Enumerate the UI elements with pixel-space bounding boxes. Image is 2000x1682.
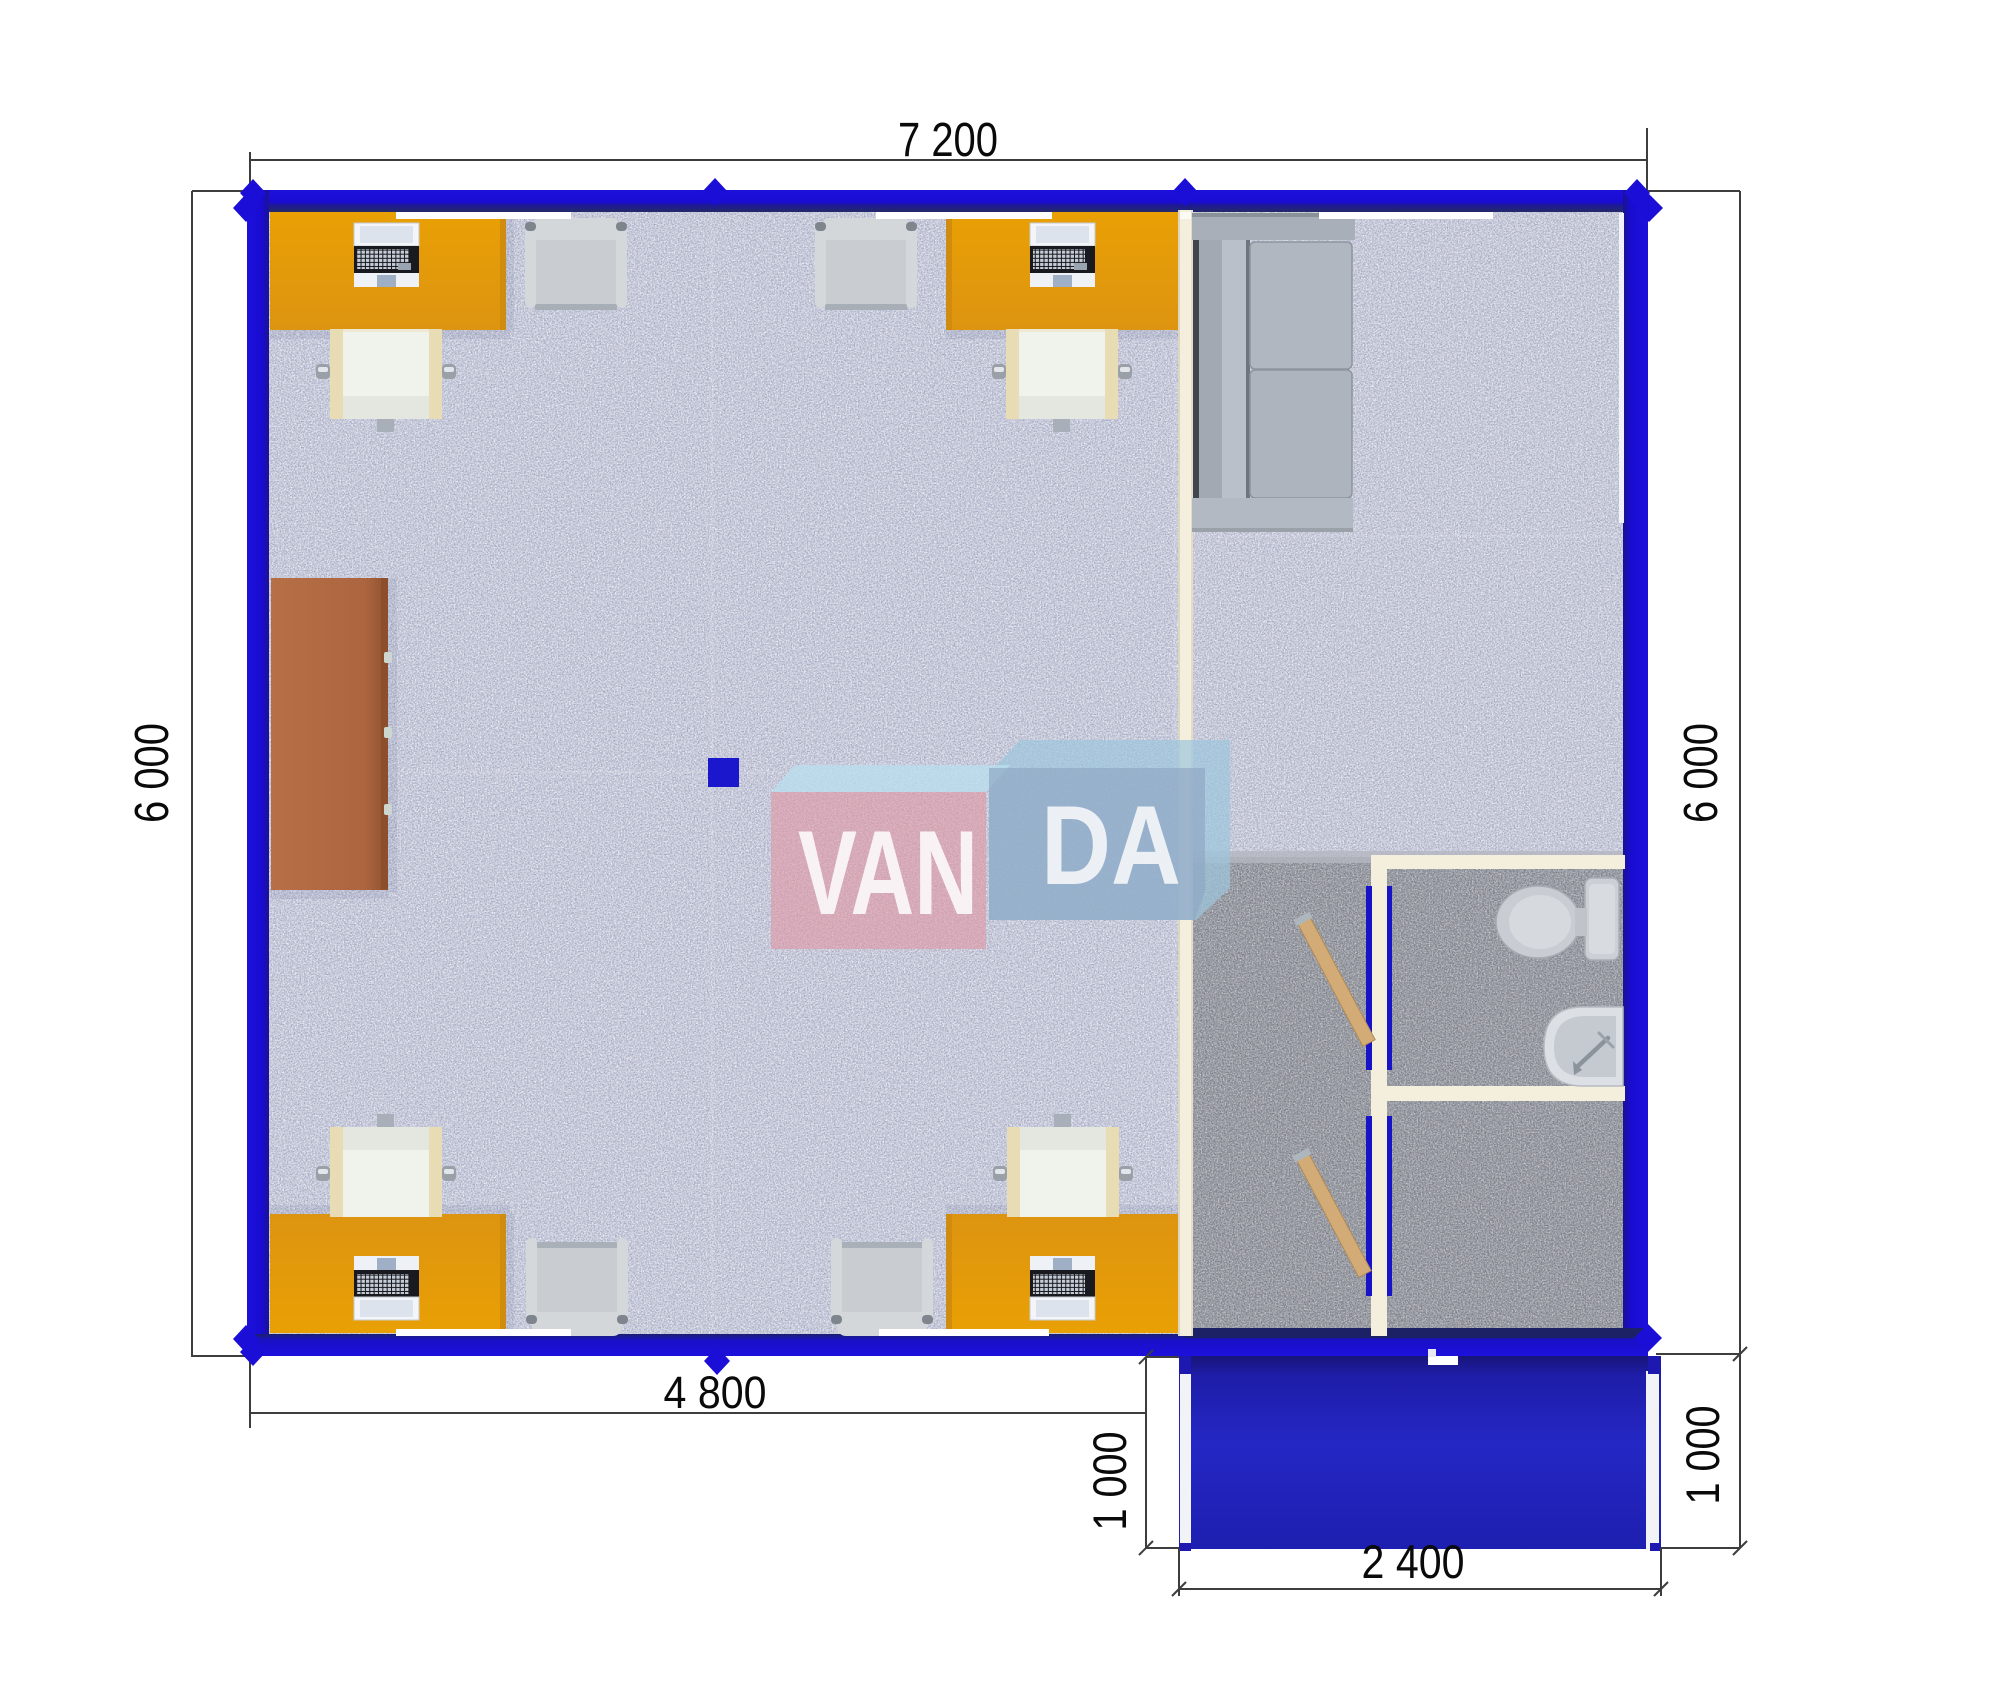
svg-text:1 000: 1 000 bbox=[1676, 1406, 1729, 1505]
svg-text:4 800: 4 800 bbox=[664, 1367, 767, 1418]
svg-text:6 000: 6 000 bbox=[1675, 723, 1728, 823]
svg-text:DA: DA bbox=[1041, 783, 1181, 908]
svg-text:VAN: VAN bbox=[798, 806, 978, 940]
svg-text:7 200: 7 200 bbox=[898, 114, 998, 167]
svg-text:6 000: 6 000 bbox=[126, 723, 179, 823]
svg-text:2 400: 2 400 bbox=[1362, 1535, 1465, 1588]
svg-text:1 000: 1 000 bbox=[1083, 1432, 1136, 1531]
